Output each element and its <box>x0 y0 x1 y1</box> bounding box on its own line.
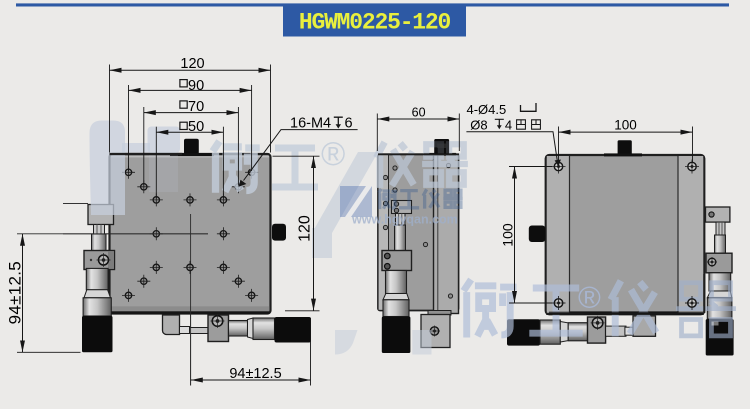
svg-text:94±12.5: 94±12.5 <box>6 261 25 324</box>
svg-text:120: 120 <box>297 215 314 242</box>
svg-text:4-Ø4.5: 4-Ø4.5 <box>467 102 507 117</box>
svg-text:HGWM0225-120: HGWM0225-120 <box>299 10 451 36</box>
svg-text:www.hgyqan.com: www.hgyqan.com <box>351 213 458 227</box>
svg-text:90: 90 <box>188 78 204 94</box>
svg-text:94±12.5: 94±12.5 <box>229 366 281 382</box>
svg-text:100: 100 <box>614 117 637 132</box>
svg-text:®: ® <box>321 135 345 172</box>
svg-text:70: 70 <box>188 99 204 115</box>
svg-text:60: 60 <box>412 105 426 119</box>
svg-text:120: 120 <box>180 56 204 72</box>
svg-text:100: 100 <box>500 223 516 247</box>
svg-text:50: 50 <box>188 119 204 135</box>
svg-text:4: 4 <box>505 117 512 132</box>
svg-text:®: ® <box>578 280 601 315</box>
svg-text:Ø8: Ø8 <box>470 117 487 132</box>
